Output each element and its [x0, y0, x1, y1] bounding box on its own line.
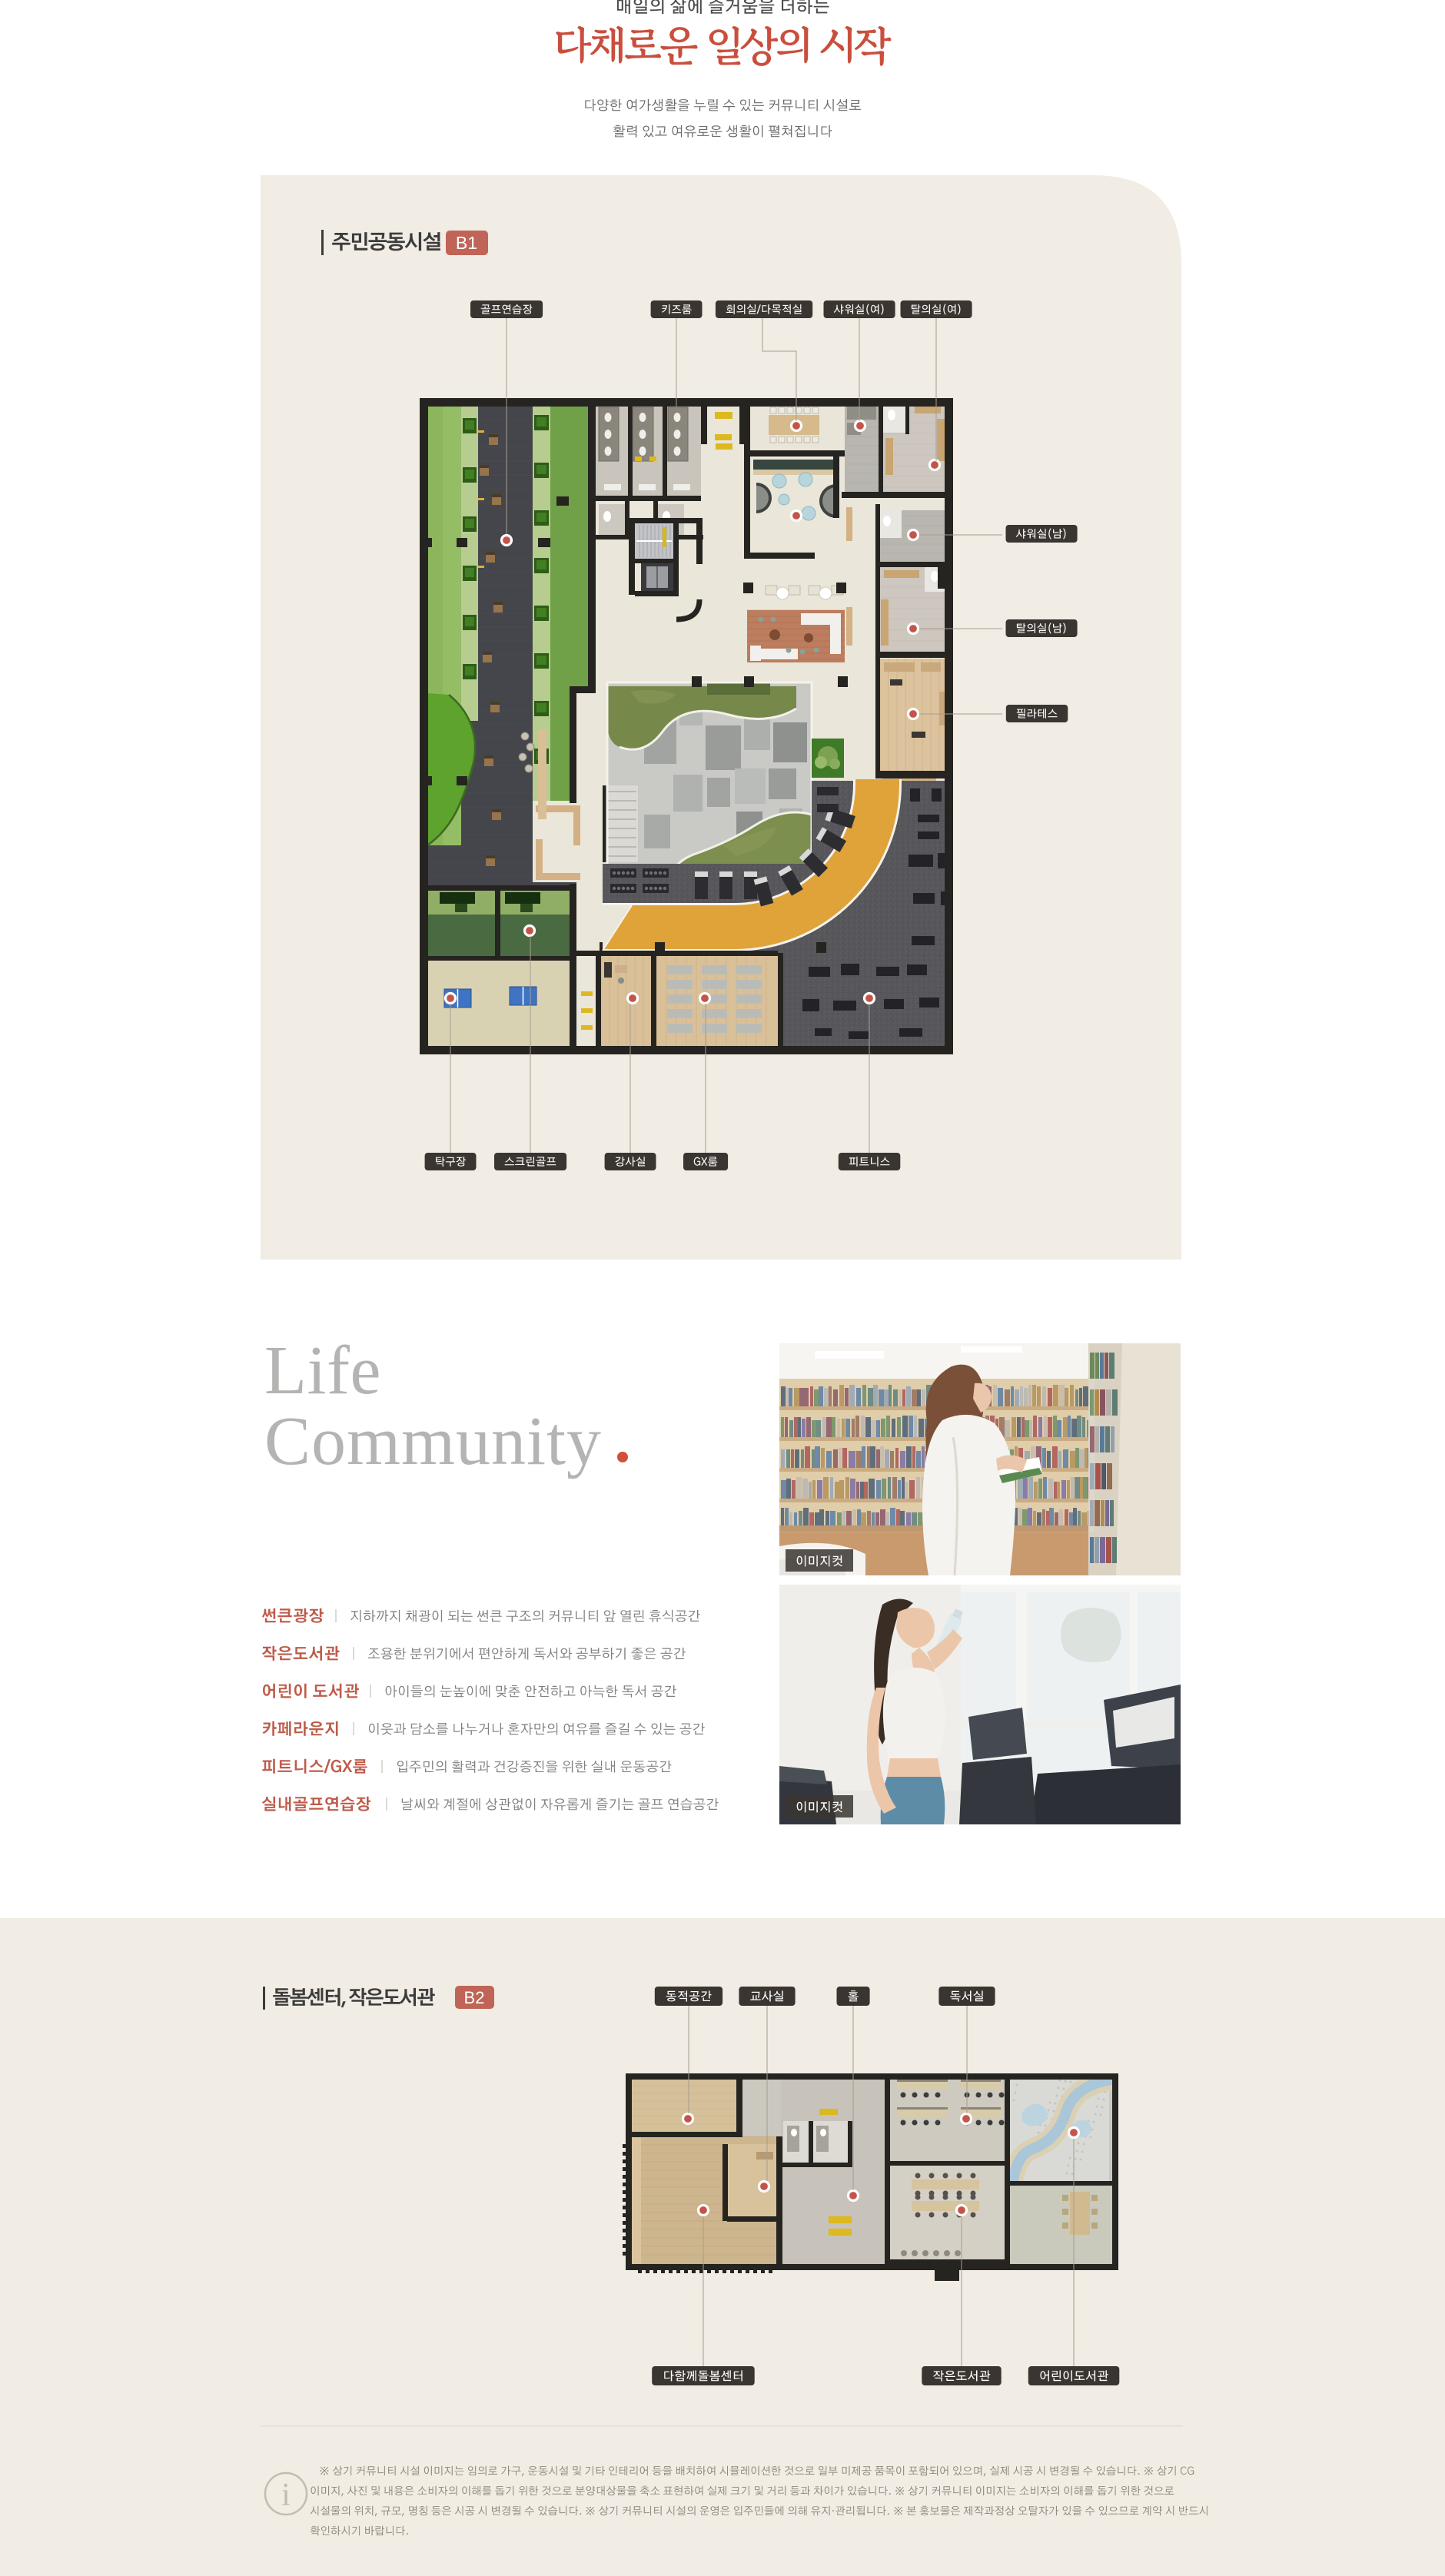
svg-text:B1: B1	[456, 233, 477, 253]
svg-text:i: i	[281, 2478, 291, 2513]
svg-text:B2: B2	[464, 1988, 485, 2007]
svg-text:Community: Community	[264, 1403, 602, 1479]
svg-text:Life: Life	[264, 1333, 381, 1409]
